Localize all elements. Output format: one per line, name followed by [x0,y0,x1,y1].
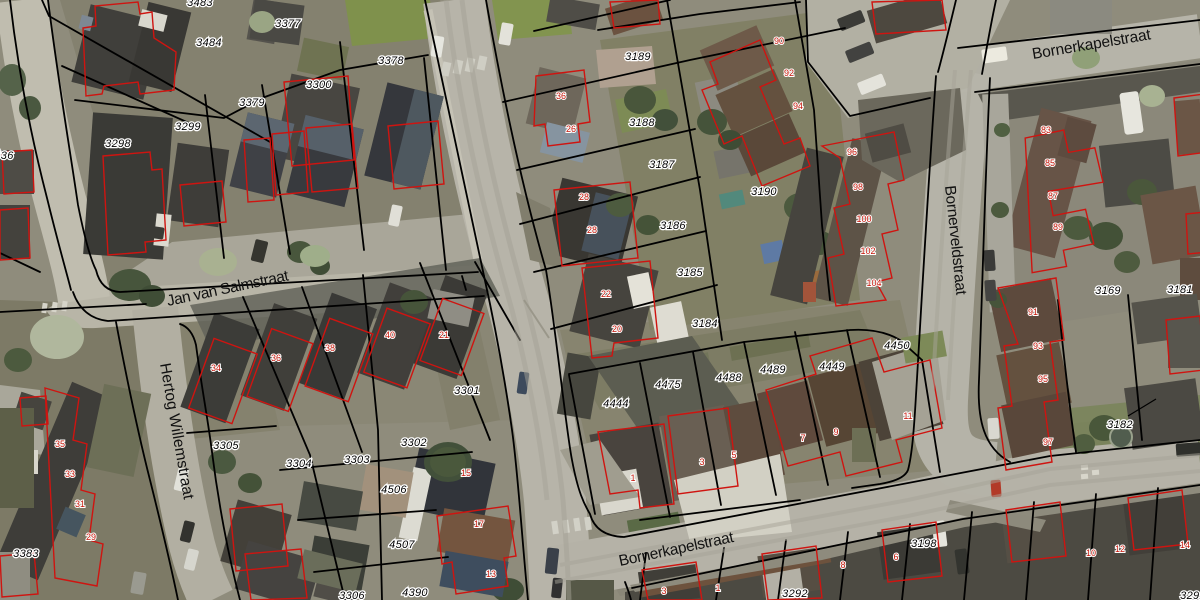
svg-text:83: 83 [1041,125,1051,135]
svg-text:3304: 3304 [286,458,312,470]
svg-text:3299: 3299 [175,121,201,133]
svg-text:3483: 3483 [187,0,213,9]
svg-text:4489: 4489 [760,364,786,376]
svg-text:3300: 3300 [306,79,332,91]
svg-text:34: 34 [211,363,221,373]
svg-text:3306: 3306 [339,590,365,600]
svg-text:3190: 3190 [751,186,777,198]
svg-text:3301: 3301 [454,385,480,397]
svg-text:9: 9 [833,427,838,437]
svg-text:28: 28 [587,225,597,235]
svg-text:3379: 3379 [239,97,265,109]
svg-text:3303: 3303 [344,454,370,466]
svg-text:4390: 4390 [402,587,428,599]
svg-text:91: 91 [1028,307,1038,317]
svg-text:17: 17 [474,519,484,529]
svg-text:3182: 3182 [1107,419,1133,431]
svg-text:89: 89 [1053,222,1063,232]
svg-text:3383: 3383 [13,548,39,560]
svg-text:3292: 3292 [782,588,808,600]
svg-text:100: 100 [856,214,871,224]
svg-text:13: 13 [486,569,496,579]
svg-text:3305: 3305 [213,440,239,452]
svg-text:3302: 3302 [401,437,427,449]
svg-text:85: 85 [1045,158,1055,168]
svg-text:96: 96 [847,147,857,157]
svg-text:4449: 4449 [819,361,845,373]
svg-text:92: 92 [784,68,794,78]
svg-text:38: 38 [325,343,335,353]
svg-text:11: 11 [903,411,912,421]
svg-text:10: 10 [1086,548,1096,558]
svg-text:20: 20 [612,324,622,334]
svg-text:28: 28 [579,192,589,202]
svg-text:436: 436 [0,150,14,162]
svg-text:102: 102 [860,246,875,256]
svg-text:87: 87 [1048,191,1058,201]
svg-text:6: 6 [893,552,898,562]
svg-text:3484: 3484 [196,37,222,49]
svg-text:31: 31 [75,499,85,509]
svg-text:14: 14 [1180,540,1190,550]
svg-text:4507: 4507 [389,539,415,551]
svg-text:8: 8 [840,560,845,570]
svg-text:104: 104 [866,278,881,288]
svg-text:3169: 3169 [1095,285,1121,297]
svg-text:36: 36 [271,353,281,363]
svg-text:12: 12 [1115,544,1125,554]
svg-text:40: 40 [385,330,395,340]
svg-text:3: 3 [661,586,666,596]
svg-text:21: 21 [439,330,449,340]
svg-text:3: 3 [699,457,704,467]
svg-text:3184: 3184 [692,318,718,330]
svg-text:3291: 3291 [1180,590,1200,600]
svg-text:3378: 3378 [378,55,404,67]
svg-text:35: 35 [55,439,65,449]
svg-text:3377: 3377 [275,18,301,30]
svg-text:29: 29 [86,532,96,542]
svg-text:93: 93 [1033,341,1043,351]
svg-text:4488: 4488 [716,372,742,384]
svg-text:5: 5 [731,450,736,460]
svg-text:3185: 3185 [677,267,703,279]
svg-text:4506: 4506 [381,484,407,496]
svg-text:4450: 4450 [884,340,910,352]
svg-text:7: 7 [800,433,805,443]
svg-text:3181: 3181 [1167,284,1193,296]
svg-text:1: 1 [630,473,635,483]
svg-text:95: 95 [1038,374,1048,384]
svg-text:3186: 3186 [660,220,686,232]
svg-text:36: 36 [556,91,566,101]
svg-text:3298: 3298 [105,138,131,150]
svg-text:4475: 4475 [655,379,681,391]
svg-text:1: 1 [715,583,720,593]
svg-text:22: 22 [601,289,611,299]
svg-text:98: 98 [853,182,863,192]
svg-text:94: 94 [793,101,803,111]
svg-text:33: 33 [65,469,75,479]
svg-text:3198: 3198 [911,538,937,550]
svg-text:4444: 4444 [603,398,629,410]
svg-text:15: 15 [461,468,471,478]
svg-text:97: 97 [1043,437,1053,447]
svg-text:3188: 3188 [629,117,655,129]
svg-text:90: 90 [774,36,784,46]
svg-text:3187: 3187 [649,159,675,171]
svg-text:26: 26 [566,124,576,134]
svg-text:3189: 3189 [625,51,651,63]
